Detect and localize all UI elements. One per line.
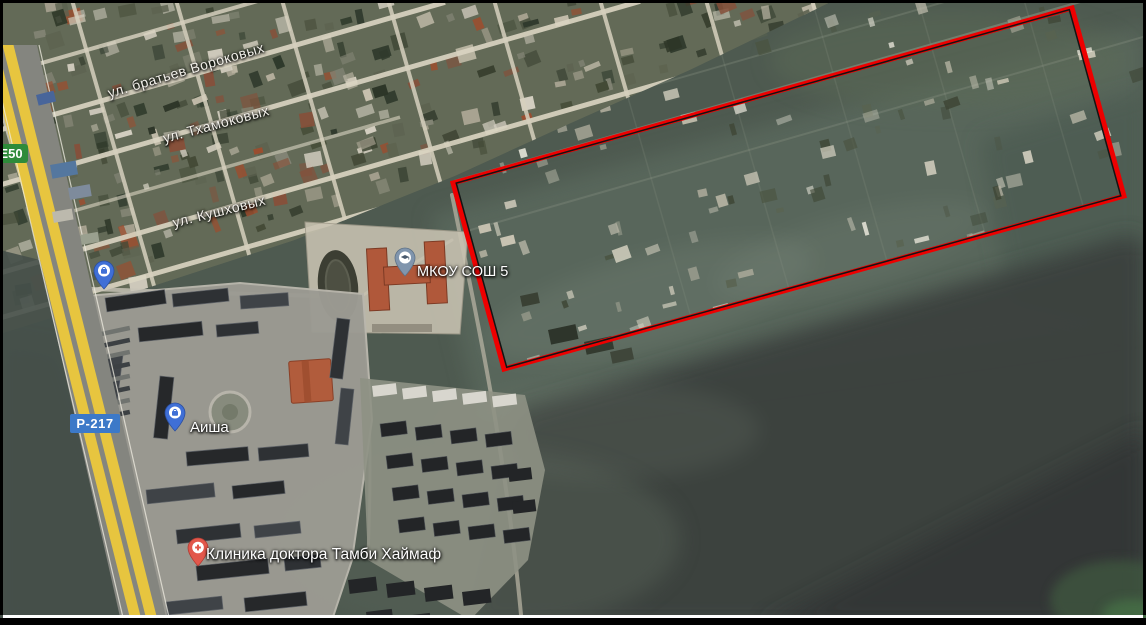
- frame-border-left: [0, 0, 3, 615]
- route-badge-r217: Р-217: [70, 414, 120, 433]
- shopping-pin-aisha[interactable]: [164, 402, 186, 432]
- poi-label-aisha[interactable]: Аиша: [190, 419, 229, 436]
- poi-label-clinic[interactable]: Клиника доктора Тамби Хаймаф: [206, 546, 441, 564]
- satellite-map[interactable]: [0, 0, 1146, 626]
- map-screenshot: E50 Р-217 ул. братьев Вороковых ул. Тхам…: [0, 0, 1146, 626]
- school-pin[interactable]: [394, 247, 416, 277]
- frame-border-top: [0, 0, 1146, 3]
- frame-border-bottom: [0, 618, 1146, 625]
- shopping-pin[interactable]: [93, 260, 115, 290]
- route-badge-e50: E50: [0, 144, 28, 163]
- red-roof-building: [289, 359, 334, 404]
- poi-label-school[interactable]: МКОУ СОШ 5: [417, 264, 508, 280]
